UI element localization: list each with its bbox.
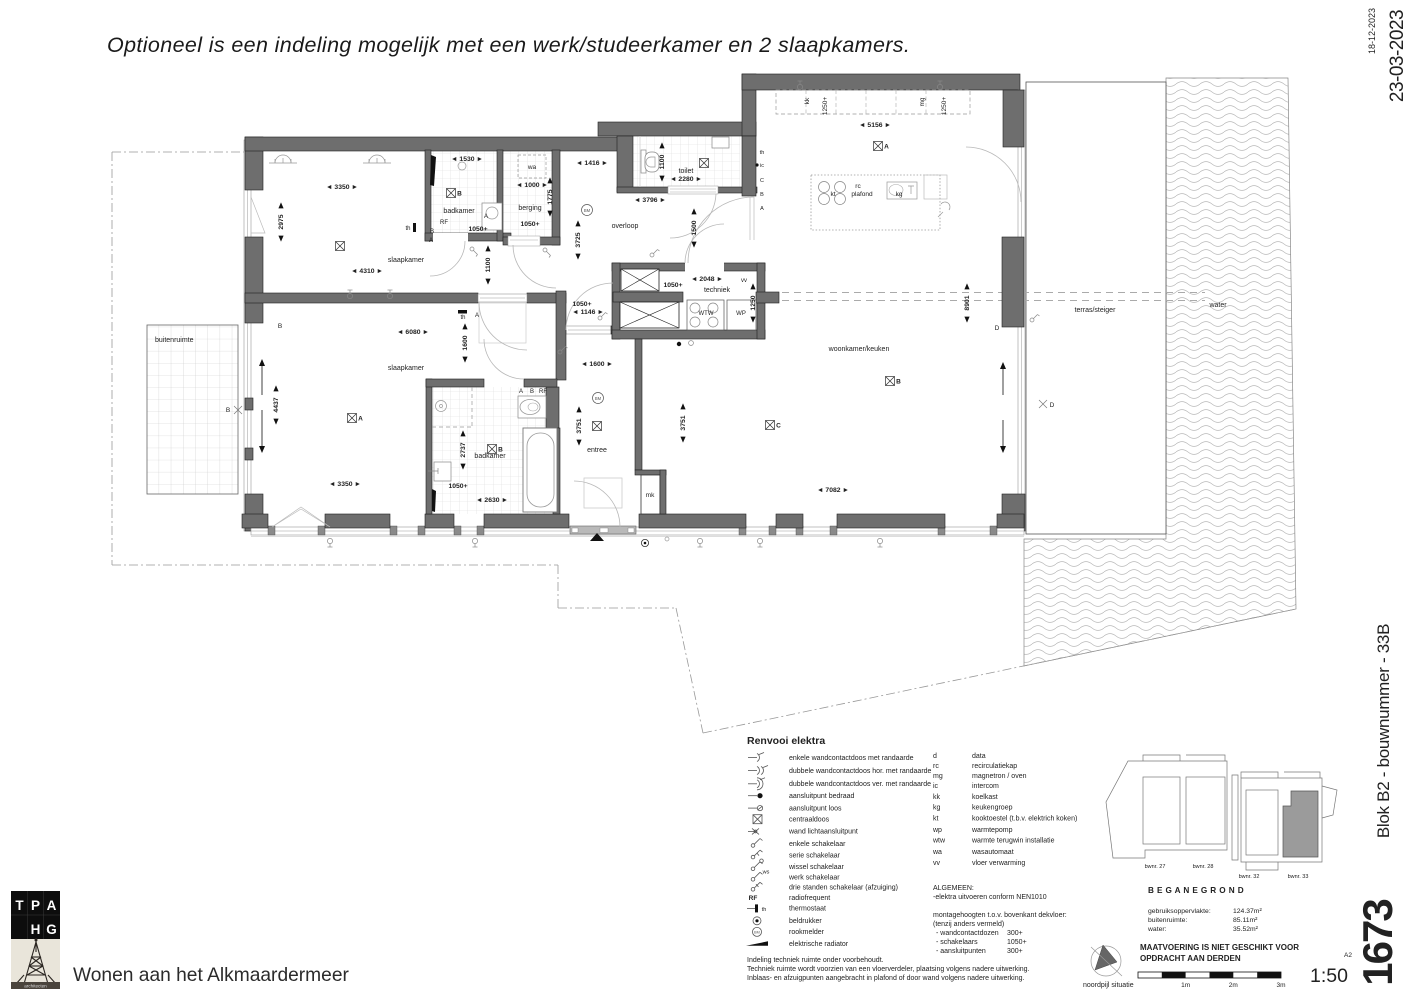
svg-text:A: A xyxy=(760,206,764,212)
svg-text:◄ 1146 ►: ◄ 1146 ► xyxy=(572,309,604,316)
svg-text:C: C xyxy=(760,178,764,184)
svg-text:mg: mg xyxy=(919,97,926,106)
svg-text:rc: rc xyxy=(855,183,861,190)
svg-text:85.11m²: 85.11m² xyxy=(1233,917,1258,924)
svg-text:data: data xyxy=(972,753,986,760)
svg-text:ALGEMEEN:: ALGEMEEN: xyxy=(933,885,974,892)
svg-text:2975: 2975 xyxy=(278,214,285,229)
svg-text:MAATVOERING IS NIET GESCHIKT V: MAATVOERING IS NIET GESCHIKT VOOR xyxy=(1140,943,1299,952)
svg-text:enkele wandcontactdoos met ran: enkele wandcontactdoos met randaarde xyxy=(789,755,914,762)
svg-text:1673: 1673 xyxy=(1354,900,1401,986)
svg-text:23-03-2023: 23-03-2023 xyxy=(1387,10,1408,102)
svg-text:plafond: plafond xyxy=(851,191,873,198)
svg-text:th: th xyxy=(762,907,767,913)
svg-text:- aansluitpunten: - aansluitpunten xyxy=(936,948,986,955)
svg-text:slaapkamer: slaapkamer xyxy=(388,365,425,372)
svg-text:th: th xyxy=(460,315,465,321)
svg-text:aansluitpunt bedraad: aansluitpunt bedraad xyxy=(789,793,854,800)
svg-text:B: B xyxy=(498,447,503,454)
svg-text:buitenruimte: buitenruimte xyxy=(155,337,194,344)
svg-text:dubbele wandcontactdoos hor. m: dubbele wandcontactdoos hor. met randaar… xyxy=(789,768,932,775)
svg-text:8901: 8901 xyxy=(964,295,971,310)
svg-text:1100: 1100 xyxy=(659,154,666,169)
svg-text:B: B xyxy=(278,323,282,330)
svg-text:wa: wa xyxy=(527,164,537,171)
svg-text:thermostaat: thermostaat xyxy=(789,906,826,913)
svg-text:B: B xyxy=(896,379,901,386)
svg-text:mk: mk xyxy=(646,492,655,499)
svg-text:1050+: 1050+ xyxy=(520,221,539,228)
svg-text:RF: RF xyxy=(749,895,758,902)
svg-text:3751: 3751 xyxy=(576,418,583,433)
svg-text:wissel schakelaar: wissel schakelaar xyxy=(788,864,845,871)
svg-text:1100: 1100 xyxy=(485,257,492,272)
svg-text:1050+: 1050+ xyxy=(663,282,682,289)
svg-text:◄ 1530 ►: ◄ 1530 ► xyxy=(451,156,483,163)
svg-text:A: A xyxy=(47,898,57,913)
svg-text:1050+: 1050+ xyxy=(468,226,487,233)
svg-text:bwnr. 33: bwnr. 33 xyxy=(1288,874,1309,880)
svg-text:G: G xyxy=(46,922,57,937)
svg-text:warmte terugwin installatie: warmte terugwin installatie xyxy=(971,838,1055,845)
svg-text:ic: ic xyxy=(760,163,764,169)
svg-text:elektrische radiator: elektrische radiator xyxy=(789,941,849,948)
svg-text:C: C xyxy=(776,423,781,430)
svg-text:warmtepomp: warmtepomp xyxy=(971,827,1013,834)
svg-text:vv: vv xyxy=(741,278,747,284)
svg-text:◄ 3796 ►: ◄ 3796 ► xyxy=(634,197,666,204)
svg-text:ic: ic xyxy=(933,783,939,790)
svg-text:badkamer: badkamer xyxy=(474,453,506,460)
svg-text:aansluitpunt loos: aansluitpunt loos xyxy=(789,805,842,812)
svg-text:35.52m²: 35.52m² xyxy=(1233,926,1259,933)
svg-text:toilet: toilet xyxy=(679,168,694,175)
svg-text:Renvooi elektra: Renvooi elektra xyxy=(747,735,825,747)
svg-text:A: A xyxy=(429,238,433,244)
svg-text:wp: wp xyxy=(932,827,942,834)
svg-text:300+: 300+ xyxy=(1007,948,1023,955)
svg-text:radiofrequent: radiofrequent xyxy=(789,895,830,902)
svg-text:terras/steiger: terras/steiger xyxy=(1075,307,1117,314)
svg-text:-elektra uitvoeren conform NEN: -elektra uitvoeren conform NEN1010 xyxy=(933,894,1047,901)
svg-text:architecten: architecten xyxy=(24,984,47,989)
svg-text:gebruiksoppervlakte:: gebruiksoppervlakte: xyxy=(1148,908,1211,915)
svg-text:techniek: techniek xyxy=(704,287,731,294)
svg-text:BM: BM xyxy=(595,396,602,401)
svg-text:3m: 3m xyxy=(1276,982,1285,989)
svg-text:- wandcontactdozen: - wandcontactdozen xyxy=(936,930,999,937)
svg-text:Techniek ruimte wordt voorzien: Techniek ruimte wordt voorzien van een v… xyxy=(747,966,1030,973)
svg-text:1250+: 1250+ xyxy=(941,97,948,115)
svg-text:◄ 1600 ►: ◄ 1600 ► xyxy=(581,361,613,368)
svg-text:1775: 1775 xyxy=(547,189,554,204)
svg-text:124.37m²: 124.37m² xyxy=(1233,908,1262,915)
svg-text:1m: 1m xyxy=(1181,982,1190,989)
svg-text:bwnr. 28: bwnr. 28 xyxy=(1193,864,1214,870)
svg-text:1050+: 1050+ xyxy=(1007,939,1027,946)
svg-text:d: d xyxy=(933,753,937,760)
svg-text:overloop: overloop xyxy=(612,223,639,230)
svg-text:berging: berging xyxy=(518,205,541,212)
svg-text:entree: entree xyxy=(587,447,607,454)
svg-text:A: A xyxy=(358,416,363,423)
svg-text:ws: ws xyxy=(762,869,770,875)
svg-text:◄ 2048 ►: ◄ 2048 ► xyxy=(691,276,723,283)
svg-text:th: th xyxy=(760,150,765,156)
svg-text:A: A xyxy=(475,313,479,319)
svg-text:◄ 4310 ►: ◄ 4310 ► xyxy=(351,268,383,275)
svg-text:T: T xyxy=(15,898,24,913)
svg-text:◄ 2630 ►: ◄ 2630 ► xyxy=(476,497,508,504)
svg-text:◄ 3350 ►: ◄ 3350 ► xyxy=(329,481,361,488)
svg-text:B E G A N E G R O N D: B E G A N E G R O N D xyxy=(1148,886,1244,895)
svg-text:B: B xyxy=(430,229,434,235)
svg-text:dubbele wandcontactdoos ver. m: dubbele wandcontactdoos ver. met randaar… xyxy=(789,781,931,788)
svg-text:1500: 1500 xyxy=(691,220,698,235)
svg-text:1:50: 1:50 xyxy=(1310,965,1348,987)
svg-text:B: B xyxy=(226,407,230,414)
svg-text:water: water xyxy=(1208,302,1227,309)
svg-text:drie standen schakelaar (afzui: drie standen schakelaar (afzuiging) xyxy=(789,885,898,892)
svg-text:B: B xyxy=(457,191,462,198)
svg-text:- schakelaars: - schakelaars xyxy=(936,939,978,946)
svg-text:koelkast: koelkast xyxy=(972,794,998,801)
svg-text:centraaldoos: centraaldoos xyxy=(789,817,830,824)
svg-text:BM: BM xyxy=(584,208,591,213)
svg-text:noordpijl situatie: noordpijl situatie xyxy=(1083,982,1134,989)
svg-text:th: th xyxy=(405,226,410,232)
svg-text:Indeling techniek ruimte onder: Indeling techniek ruimte onder voorbehou… xyxy=(747,957,884,964)
svg-text:◄ 5156 ►: ◄ 5156 ► xyxy=(859,122,891,129)
svg-text:Wonen aan het Alkmaardermeer: Wonen aan het Alkmaardermeer xyxy=(73,965,349,986)
svg-text:(tenzij anders vermeld): (tenzij anders vermeld) xyxy=(933,921,1004,928)
svg-text:BM: BM xyxy=(754,931,760,935)
svg-text:wasautomaat: wasautomaat xyxy=(971,849,1014,856)
svg-text:◄ 1000 ►: ◄ 1000 ► xyxy=(516,182,548,189)
svg-text:badkamer: badkamer xyxy=(443,208,475,215)
svg-text:◄ 1416 ►: ◄ 1416 ► xyxy=(576,160,608,167)
svg-text:buitenruimte:: buitenruimte: xyxy=(1148,917,1187,924)
svg-text:4437: 4437 xyxy=(273,397,280,412)
svg-text:RF: RF xyxy=(539,389,547,395)
svg-text:Optioneel is een indeling moge: Optioneel is een indeling mogelijk met e… xyxy=(107,33,910,57)
svg-text:RF: RF xyxy=(440,220,448,226)
svg-text:kt: kt xyxy=(933,816,939,823)
svg-text:A: A xyxy=(884,144,889,151)
svg-text:kg: kg xyxy=(896,191,903,198)
svg-text:1050+: 1050+ xyxy=(572,301,591,308)
svg-text:kt: kt xyxy=(830,191,835,198)
svg-text:A: A xyxy=(484,214,488,220)
svg-text:3751: 3751 xyxy=(680,415,687,430)
svg-text:A: A xyxy=(519,389,523,395)
svg-text:kooktoestel (t.b.v. elektrich: kooktoestel (t.b.v. elektrich koken) xyxy=(972,816,1077,823)
svg-text:magnetron / oven: magnetron / oven xyxy=(972,773,1027,780)
svg-text:vv: vv xyxy=(933,860,941,867)
svg-text:B: B xyxy=(530,389,534,395)
svg-text:P: P xyxy=(31,898,40,913)
svg-text:B: B xyxy=(760,192,764,198)
svg-text:vloer verwarming: vloer verwarming xyxy=(972,860,1025,867)
svg-text:1050+: 1050+ xyxy=(448,483,467,490)
svg-text:bwnr. 27: bwnr. 27 xyxy=(1145,864,1166,870)
svg-text:kk: kk xyxy=(804,97,811,104)
svg-text:◄ 7082 ►: ◄ 7082 ► xyxy=(817,487,849,494)
svg-text:rc: rc xyxy=(933,763,939,770)
svg-text:slaapkamer: slaapkamer xyxy=(388,257,425,264)
svg-text:enkele schakelaar: enkele schakelaar xyxy=(789,841,846,848)
svg-text:D: D xyxy=(995,325,1000,332)
svg-text:3725: 3725 xyxy=(575,232,582,247)
svg-text:montagehoogten t.o.v. bovenkan: montagehoogten t.o.v. bovenkant dekvloer… xyxy=(933,912,1067,919)
svg-text:mg: mg xyxy=(933,773,943,780)
svg-text:intercom: intercom xyxy=(972,783,999,790)
svg-text:werk schakelaar: werk schakelaar xyxy=(788,875,840,882)
svg-text:woonkamer/keuken: woonkamer/keuken xyxy=(828,346,890,353)
svg-text:Blok B2 - bouwnummer - 33B: Blok B2 - bouwnummer - 33B xyxy=(1374,624,1393,838)
svg-text:Inblaas- en afzuigpunten aange: Inblaas- en afzuigpunten aangebracht in … xyxy=(747,975,1025,982)
svg-text:H: H xyxy=(31,922,41,937)
svg-text:rookmelder: rookmelder xyxy=(789,929,825,936)
svg-text:300+: 300+ xyxy=(1007,930,1023,937)
svg-text:serie schakelaar: serie schakelaar xyxy=(789,852,841,859)
svg-text:wand lichtaansluitpunt: wand lichtaansluitpunt xyxy=(788,829,858,836)
svg-text:◄ 6080 ►: ◄ 6080 ► xyxy=(397,329,429,336)
svg-text:1250+: 1250+ xyxy=(822,97,829,115)
svg-text:water:: water: xyxy=(1147,926,1167,933)
svg-text:WTW: WTW xyxy=(699,311,714,317)
svg-text:kk: kk xyxy=(933,794,941,801)
svg-text:◄ 2280 ►: ◄ 2280 ► xyxy=(670,176,702,183)
svg-text:recirculatiekap: recirculatiekap xyxy=(972,763,1017,770)
svg-text:wtw: wtw xyxy=(932,838,946,845)
svg-text:beldrukker: beldrukker xyxy=(789,918,822,925)
svg-text:2m: 2m xyxy=(1229,982,1238,989)
svg-text:kg: kg xyxy=(933,805,941,812)
svg-text:OPDRACHT AAN DERDEN: OPDRACHT AAN DERDEN xyxy=(1140,954,1241,963)
svg-text:WP: WP xyxy=(736,311,746,317)
svg-text:1600: 1600 xyxy=(462,335,469,350)
svg-text:D: D xyxy=(1050,402,1055,409)
svg-text:◄ 3350 ►: ◄ 3350 ► xyxy=(326,184,358,191)
svg-text:bwnr. 32: bwnr. 32 xyxy=(1239,874,1260,880)
svg-text:A2: A2 xyxy=(1344,952,1352,959)
svg-text:2737: 2737 xyxy=(460,442,467,457)
svg-text:18-12-2023: 18-12-2023 xyxy=(1367,8,1377,54)
svg-text:wa: wa xyxy=(932,849,942,856)
svg-text:1250: 1250 xyxy=(750,295,757,310)
svg-text:keukengroep: keukengroep xyxy=(972,805,1013,812)
